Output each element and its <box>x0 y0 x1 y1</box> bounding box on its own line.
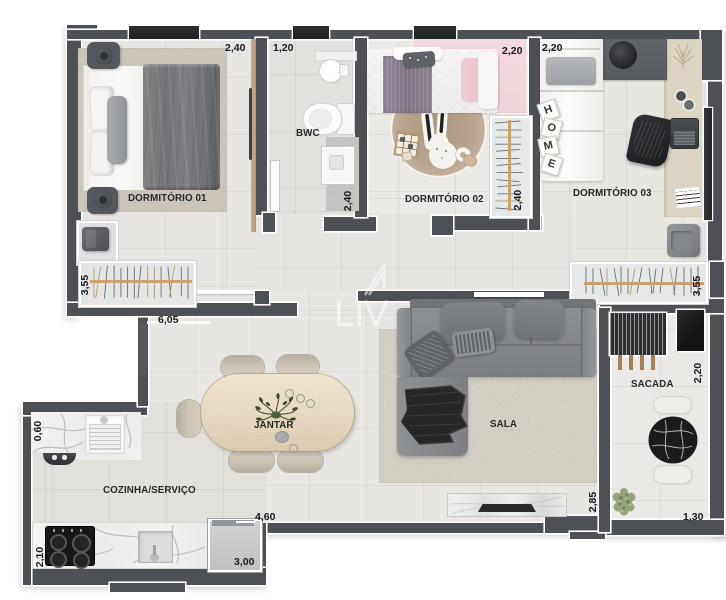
svg-text:LIV: LIV <box>334 293 389 334</box>
